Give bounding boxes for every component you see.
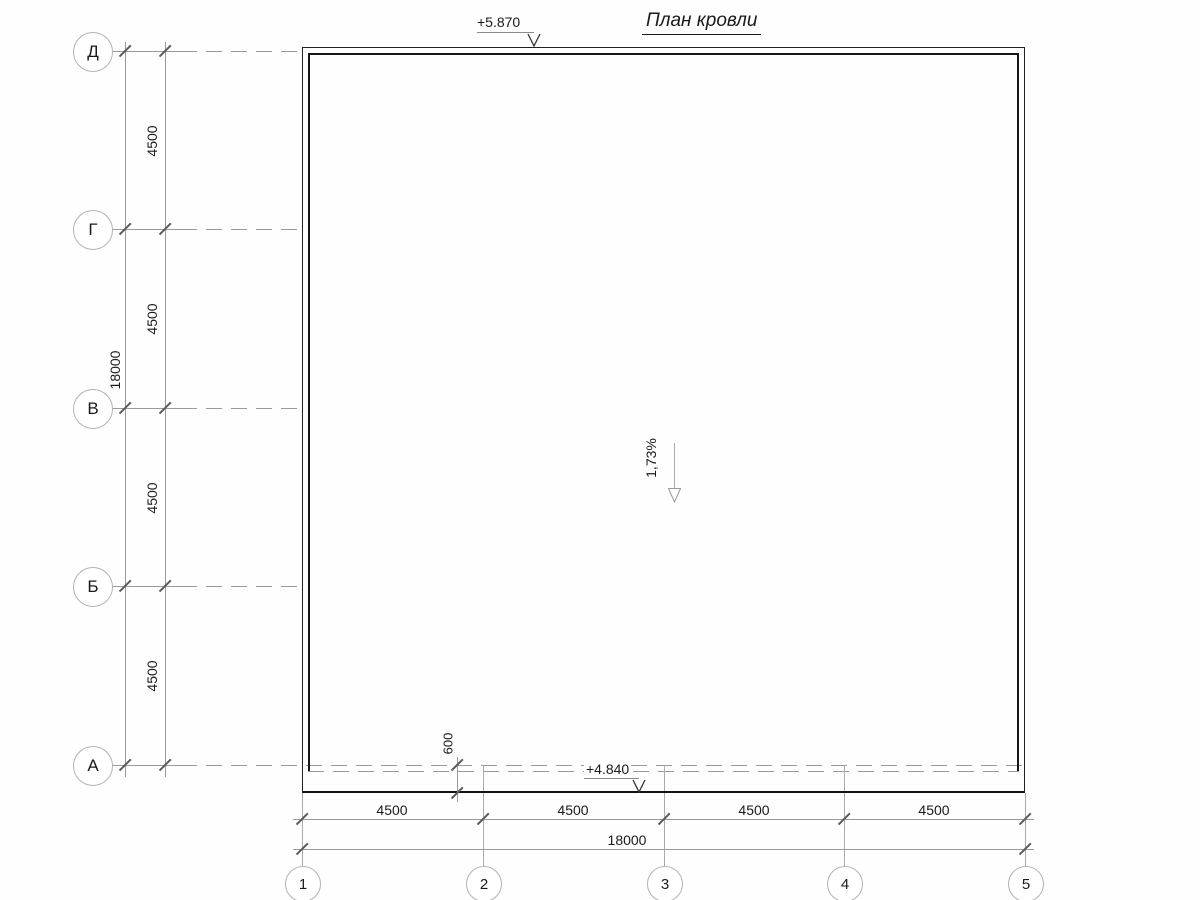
- slope-label: 1,73%: [643, 426, 659, 490]
- dim-label-row-span-1: 4500: [144, 111, 160, 171]
- axis-circle-row-1: Д: [73, 32, 113, 72]
- slope-arrow-shaft: [674, 443, 675, 489]
- axis-dash-row-g: [181, 229, 302, 230]
- axis-circle-col-2: 2: [466, 866, 502, 900]
- elevation-top-leader: [477, 32, 534, 33]
- axis-label-row-4: Б: [87, 577, 98, 597]
- axis-circle-row-4: Б: [73, 567, 113, 607]
- dim-label-col-span-2: 4500: [543, 802, 603, 818]
- dim-line-row-spans: [165, 42, 166, 777]
- elevation-arrow-icon: [527, 33, 541, 47]
- ext-line-col-5: [1025, 793, 1026, 867]
- axis-dash-row-v: [181, 408, 302, 409]
- axis-label-row-3: В: [87, 399, 98, 419]
- dim-label-row-span-4: 4500: [144, 646, 160, 706]
- axis-circle-col-4: 4: [827, 866, 863, 900]
- slope-arrow-icon: [668, 488, 681, 503]
- axis-circle-col-1: 1: [285, 866, 321, 900]
- dim-line-row-total: [125, 42, 126, 777]
- axis-label-row-2: Г: [88, 220, 97, 240]
- axis-label-col-4: 4: [841, 876, 849, 893]
- axis-circle-col-5: 5: [1008, 866, 1044, 900]
- dim-label-overhang: 600: [441, 722, 456, 766]
- axis-dash-row-b: [181, 586, 302, 587]
- elevation-bottom-label: +4.840: [584, 761, 631, 777]
- elevation-arrow-icon: [632, 779, 646, 793]
- drawing-title: План кровли: [642, 10, 761, 35]
- axis-circle-row-5: А: [73, 746, 113, 786]
- dim-label-col-total: 18000: [587, 832, 667, 848]
- dim-label-col-span-1: 4500: [362, 802, 422, 818]
- dim-label-row-total: 18000: [107, 340, 123, 400]
- axis-circle-row-3: В: [73, 389, 113, 429]
- axis-label-row-5: А: [87, 756, 98, 776]
- dim-label-row-span-3: 4500: [144, 468, 160, 528]
- dim-label-col-span-3: 4500: [724, 802, 784, 818]
- dim-line-col-total: [293, 849, 1034, 850]
- axis-label-row-1: Д: [87, 42, 99, 62]
- axis-circle-col-3: 3: [647, 866, 683, 900]
- roof-plan-drawing: 4500 4500 4500 4500 18000 Д Г В Б А 4500…: [0, 0, 1200, 900]
- axis-label-col-2: 2: [480, 876, 488, 893]
- dim-label-col-span-4: 4500: [904, 802, 964, 818]
- ext-line-col-1: [302, 793, 303, 867]
- axis-label-col-5: 5: [1022, 876, 1030, 893]
- elevation-top-label: +5.870: [477, 14, 520, 30]
- axis-dash-row-d: [181, 51, 302, 52]
- axis-circle-row-2: Г: [73, 210, 113, 250]
- axis-label-col-1: 1: [299, 876, 307, 893]
- dim-label-row-span-2: 4500: [144, 289, 160, 349]
- axis-label-col-3: 3: [661, 876, 669, 893]
- elevation-bottom-leader: [584, 778, 639, 779]
- roof-outline-inner: [308, 53, 1019, 771]
